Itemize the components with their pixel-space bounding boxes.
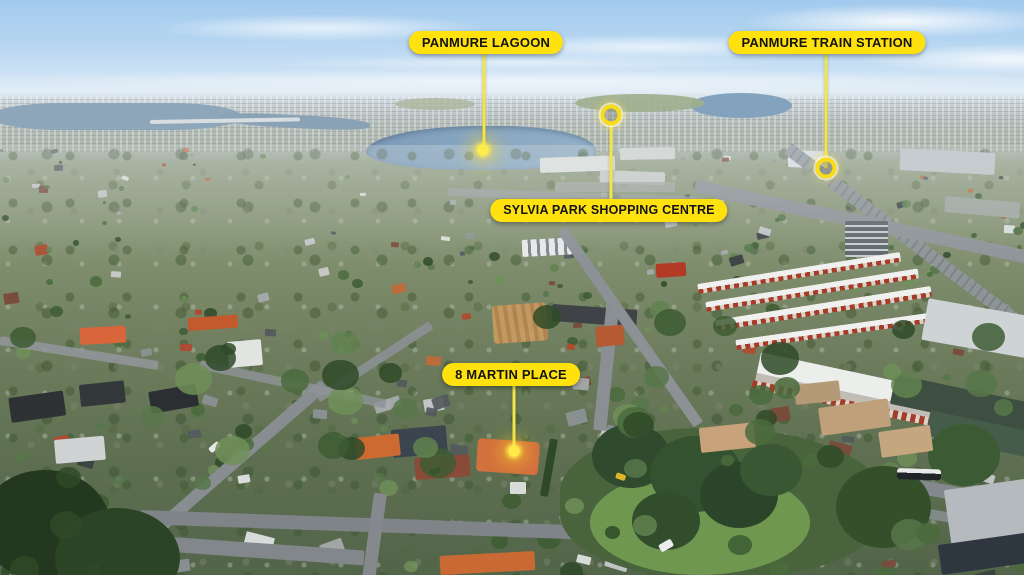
tree [318,432,349,459]
tree [413,437,437,458]
tree [322,360,358,391]
tree [215,436,250,466]
tree [633,515,657,536]
tree [745,419,775,444]
location-dot [816,158,837,179]
tree [393,398,419,420]
label-pill: SYLVIA PARK SHOPPING CENTRE [490,199,727,222]
suburb-near-scatter [0,0,1024,575]
tree [994,399,1013,416]
tree [728,535,752,555]
label-text: PANMURE TRAIN STATION [741,35,912,50]
tree [817,445,844,468]
tree [774,377,800,399]
tree [565,498,585,515]
tree [802,453,819,467]
leader-line [825,54,828,168]
tree [892,320,914,339]
tree [721,455,734,466]
tree [50,306,63,317]
tree [373,473,385,484]
label-pill: 8 MARTIN PLACE [442,363,580,386]
tree [328,386,363,415]
tree [56,467,81,488]
leader-line [513,386,516,449]
location-dot [478,145,489,156]
label-pill: PANMURE TRAIN STATION [728,31,925,54]
tree [50,511,83,539]
tree [654,309,686,336]
tree [10,327,35,348]
label-text: PANMURE LAGOON [422,35,550,50]
tree [770,561,789,575]
tree [331,331,359,355]
tree [916,523,942,545]
tree [379,363,403,383]
aerial-photo-scene: PANMURE LAGOON PANMURE TRAIN STATION SYL… [0,0,1024,575]
tree [10,556,40,575]
tree [883,364,901,379]
tree [972,323,1005,351]
tree [87,564,100,575]
tree [644,366,669,388]
label-pill: PANMURE LAGOON [409,31,563,54]
tree [194,476,210,490]
tree [281,369,309,393]
tree [713,316,737,336]
label-text: 8 MARTIN PLACE [455,367,567,382]
tree [141,406,164,426]
tree [624,459,647,478]
location-dot [509,446,520,457]
tree [623,412,654,438]
tree [605,526,620,539]
label-text: SYLVIA PARK SHOPPING CENTRE [503,203,714,217]
tree [749,385,773,406]
leader-line [610,121,613,199]
tree [965,370,997,397]
leader-line [483,54,486,149]
location-dot [601,105,622,126]
tree [175,363,213,395]
tree [761,342,799,374]
tree [205,345,236,371]
tree [533,305,562,329]
